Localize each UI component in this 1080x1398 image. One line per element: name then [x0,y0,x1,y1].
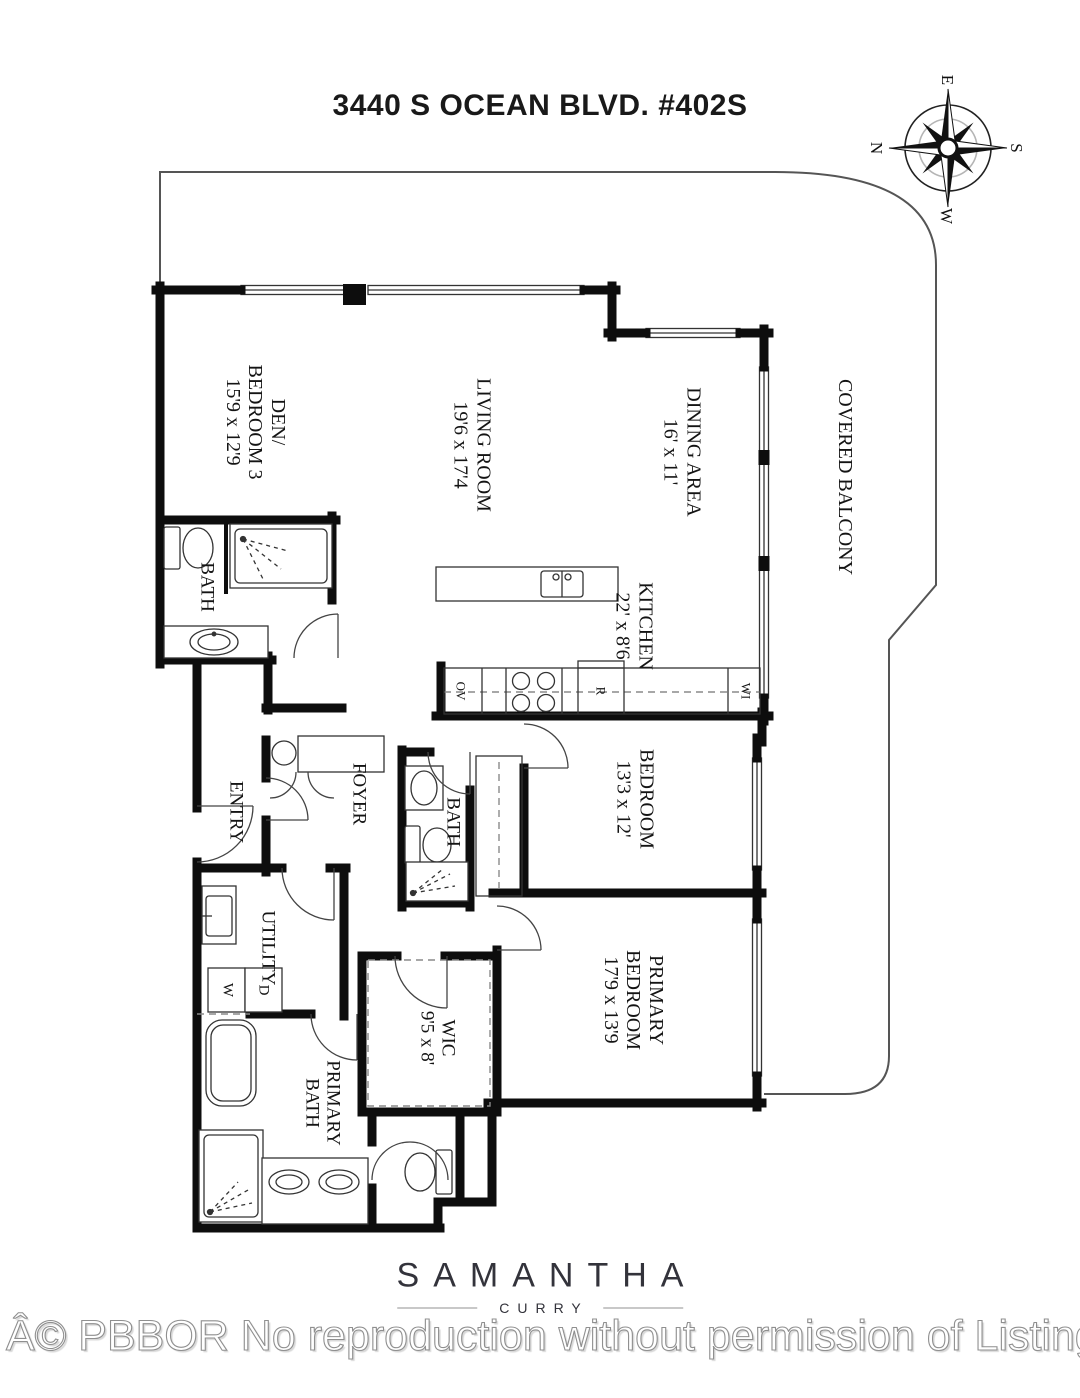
room-label-wic: WIC9'5 x 8' [394,1011,481,1065]
label-wine: WI [738,683,753,700]
room-label-covered-balcony: COVERED BALCONY [811,379,879,575]
floor-plan-drawing [0,0,1080,1398]
room-label-bath-2: BATH [421,797,486,847]
copyright-watermark: Â© PBBOR No reproduction without permiss… [6,1312,1080,1361]
plan-title: 3440 S OCEAN BLVD. #402S [333,89,748,123]
label-range: R [593,687,608,696]
room-label-entry: ENTRY [204,781,269,843]
room-label-kitchen: KITCHEN22' x 8'6 [588,582,679,670]
room-label-primary-bedroom: PRIMARY BEDROOM17'9 x 13'9 [576,950,690,1050]
room-label-living-room: LIVING ROOM19'6 x 17'4 [426,378,517,512]
brand-line-left [397,1307,477,1309]
room-label-dining-area: DINING AREA16' x 11' [636,387,727,516]
water-heater-icon [272,741,296,765]
compass-east-label: E [937,75,957,85]
floorplan-page: 3440 S OCEAN BLVD. #402S E N S W DEN/ BE… [0,0,1080,1398]
compass-south-label: S [1006,143,1026,152]
brand-line-right [603,1307,683,1309]
room-label-utility: UTILITY [236,911,301,986]
room-label-den: DEN/ BEDROOM 315'9 x 12'9 [198,364,312,479]
compass-north-label: N [866,142,886,154]
room-label-primary-bath: PRIMARY BATH [279,1060,366,1146]
room-label-foyer: FOYER [327,763,392,825]
toilet-icon [436,1150,452,1194]
label-oven: OV [453,682,468,701]
label-dryer: D [254,985,271,996]
room-label-bath: BATH [175,562,240,612]
brand-name: SAMANTHA [383,1257,698,1296]
label-washer: W [218,983,235,997]
toilet-icon [405,826,420,864]
room-label-bedroom: BEDROOM13'3 x 12' [589,749,680,849]
compass-west-label: W [936,208,956,224]
compass-icon [889,89,1007,207]
